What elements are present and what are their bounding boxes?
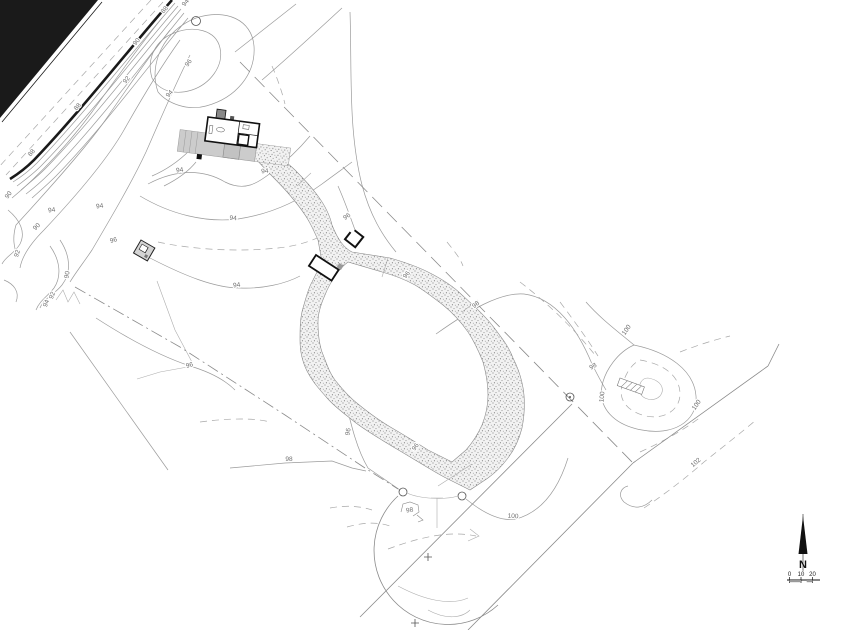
contour-label: 88 [73, 102, 83, 112]
monument-dot [569, 396, 571, 398]
contour-label: 94 [229, 215, 237, 223]
contour-label: 102 [690, 456, 703, 469]
contour-label: 100 [621, 323, 633, 336]
contour-label: 90 [32, 222, 42, 232]
north-arrow: N [799, 514, 808, 576]
contour-label: 90 [63, 270, 71, 279]
contour-label: 94 [181, 0, 191, 8]
site-plan-sheet: 98 9488909692948888909494909692909294949… [0, 0, 850, 630]
gate-post-marker [399, 488, 407, 496]
site-plan-canvas: 98 9488909692948888909494909692909294949… [0, 0, 850, 630]
scale-bar: 0 10 20 [787, 572, 820, 583]
contour-label: 94 [261, 168, 269, 176]
property-line-ne [240, 62, 633, 463]
outbuilding [134, 240, 155, 261]
retaining-wall-hatch [617, 378, 644, 394]
driveway [255, 146, 524, 490]
contour-label: 94 [176, 166, 185, 174]
contour-label: 94 [48, 206, 57, 214]
scale-bar-segment [807, 580, 813, 582]
contour-label: 90 [4, 190, 14, 200]
contour-label: 94 [96, 202, 105, 210]
gate-post-marker [458, 492, 466, 500]
contour-label: 94 [233, 281, 242, 289]
contour-label: 100 [691, 398, 703, 411]
center-cross [411, 619, 419, 627]
contour-label: 96 [184, 58, 194, 68]
main-house [177, 105, 295, 171]
contour-label: 96 [109, 236, 118, 245]
property-line-se [468, 463, 633, 630]
contour-label: 96 [344, 427, 352, 436]
gate-line [407, 493, 458, 498]
contour-label: 96 [185, 361, 194, 370]
contour-label: 98 [588, 362, 598, 372]
setback-line [75, 287, 398, 489]
structure-square [345, 229, 363, 247]
sheet-corner-mask [0, 0, 98, 118]
radius-arc [374, 496, 498, 624]
north-needle-head [799, 516, 808, 554]
spot-elevation-label: 98 [406, 506, 415, 514]
contour-label: 100 [507, 513, 519, 521]
interior-room [238, 134, 249, 145]
contour-label: 96 [342, 212, 352, 222]
contour-label: 98 [285, 456, 293, 463]
contour-label: 100 [599, 391, 607, 403]
driveway-surface [255, 146, 524, 490]
pier-block [196, 154, 202, 160]
center-cross [424, 553, 432, 561]
contour-label: 92 [13, 249, 22, 258]
scale-bar-segment [790, 580, 802, 582]
north-label: N [799, 559, 807, 571]
contour-label: 94 [42, 299, 51, 309]
contour-label: 92 [48, 291, 57, 301]
